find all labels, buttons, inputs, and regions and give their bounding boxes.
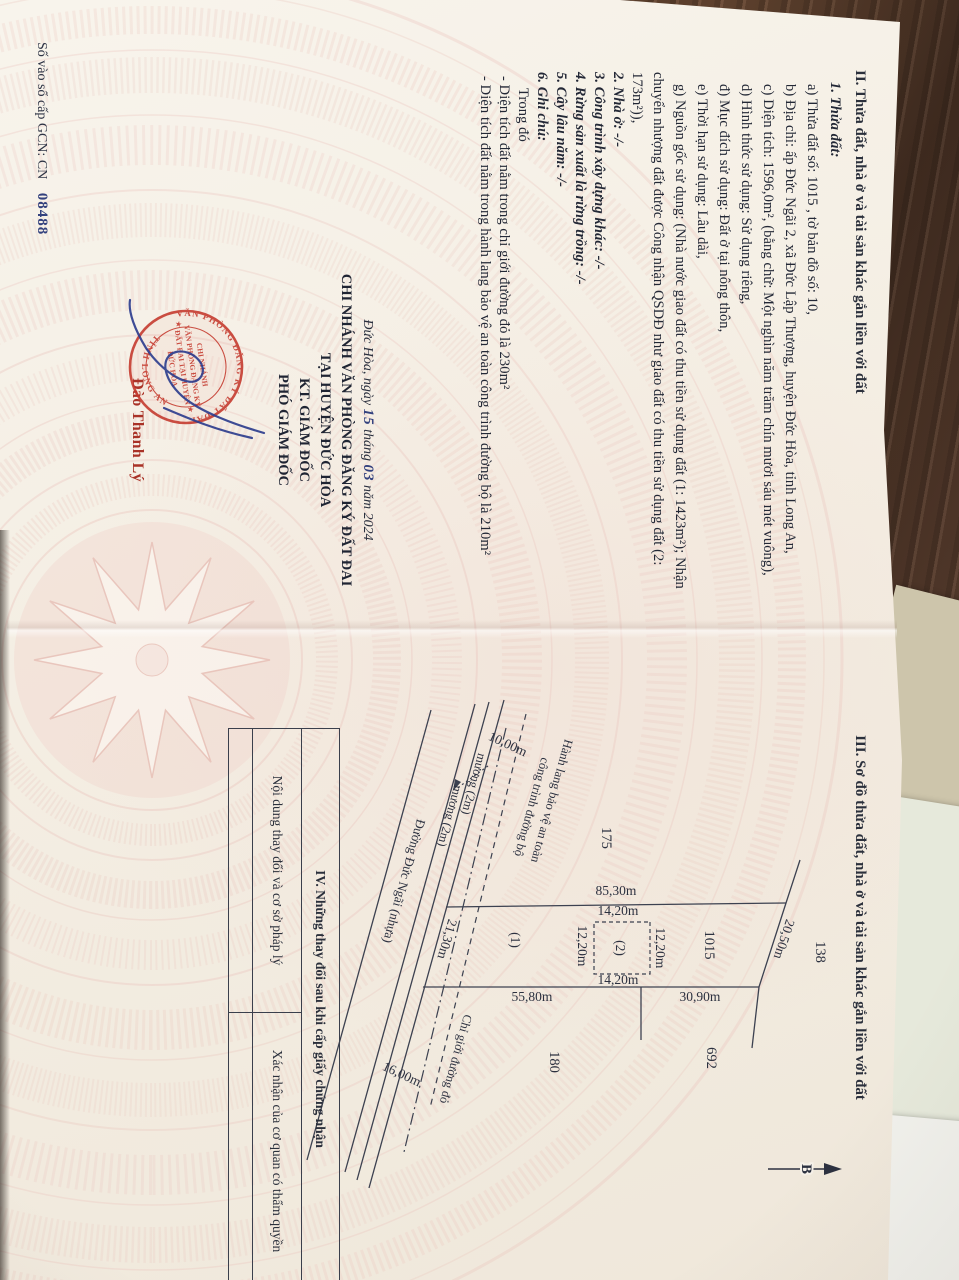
dim-front-16-00: 16,00m bbox=[380, 1058, 424, 1089]
section4-col2-header: Xác nhận của cơ quan có thẩm quyền bbox=[252, 1013, 301, 1280]
parcel-diagram: B 85,30m 20,50m 30,90m 55,80m 21,30m 16,… bbox=[0, 0, 952, 1280]
sq-dim-bottom-12-20: 12,20m bbox=[575, 926, 590, 967]
sq-dim-left-14-20: 14,20m bbox=[598, 903, 639, 918]
road-name-label: Đường Đức Ngãi (nhựa) bbox=[380, 818, 429, 945]
north-label: B bbox=[798, 1164, 814, 1174]
plot-1-label: (1) bbox=[508, 932, 523, 948]
photo-frame: II. Thửa đất, nhà ở và tài sản khác gắn … bbox=[0, 0, 959, 1280]
section4-body-cell-right bbox=[229, 1013, 252, 1280]
neighbor-180: 180 bbox=[546, 1051, 562, 1073]
parcel-number-label: 1015 bbox=[701, 931, 717, 960]
section4-heading: IV. Những thay đổi sau khi cấp giấy chứn… bbox=[301, 729, 339, 1280]
neighbor-175: 175 bbox=[598, 827, 614, 849]
section4-table: IV. Những thay đổi sau khi cấp giấy chứn… bbox=[228, 728, 340, 1280]
dim-right-30-90: 30,90m bbox=[680, 989, 721, 1004]
dim-offset-10-00: 10,00m bbox=[486, 728, 530, 759]
certificate-content: II. Thửa đất, nhà ở và tài sản khác gắn … bbox=[0, 0, 952, 1280]
desk-shadow-left bbox=[0, 530, 10, 1280]
plot-2-label: (2) bbox=[613, 940, 628, 956]
ditch-2-label: mương (2m) bbox=[435, 784, 465, 848]
dim-right-55-80: 55,80m bbox=[512, 989, 553, 1004]
neighbor-692: 692 bbox=[703, 1047, 719, 1069]
sq-dim-right-14-20: 14,20m bbox=[598, 972, 639, 987]
section4-body-cell-left bbox=[229, 729, 252, 1013]
neighbor-138: 138 bbox=[812, 941, 828, 963]
sq-dim-top-12-20: 12,20m bbox=[653, 928, 668, 969]
dim-left-85-30: 85,30m bbox=[596, 883, 637, 898]
section4-col1-header: Nội dung thay đổi và cơ sở pháp lý bbox=[252, 729, 301, 1013]
